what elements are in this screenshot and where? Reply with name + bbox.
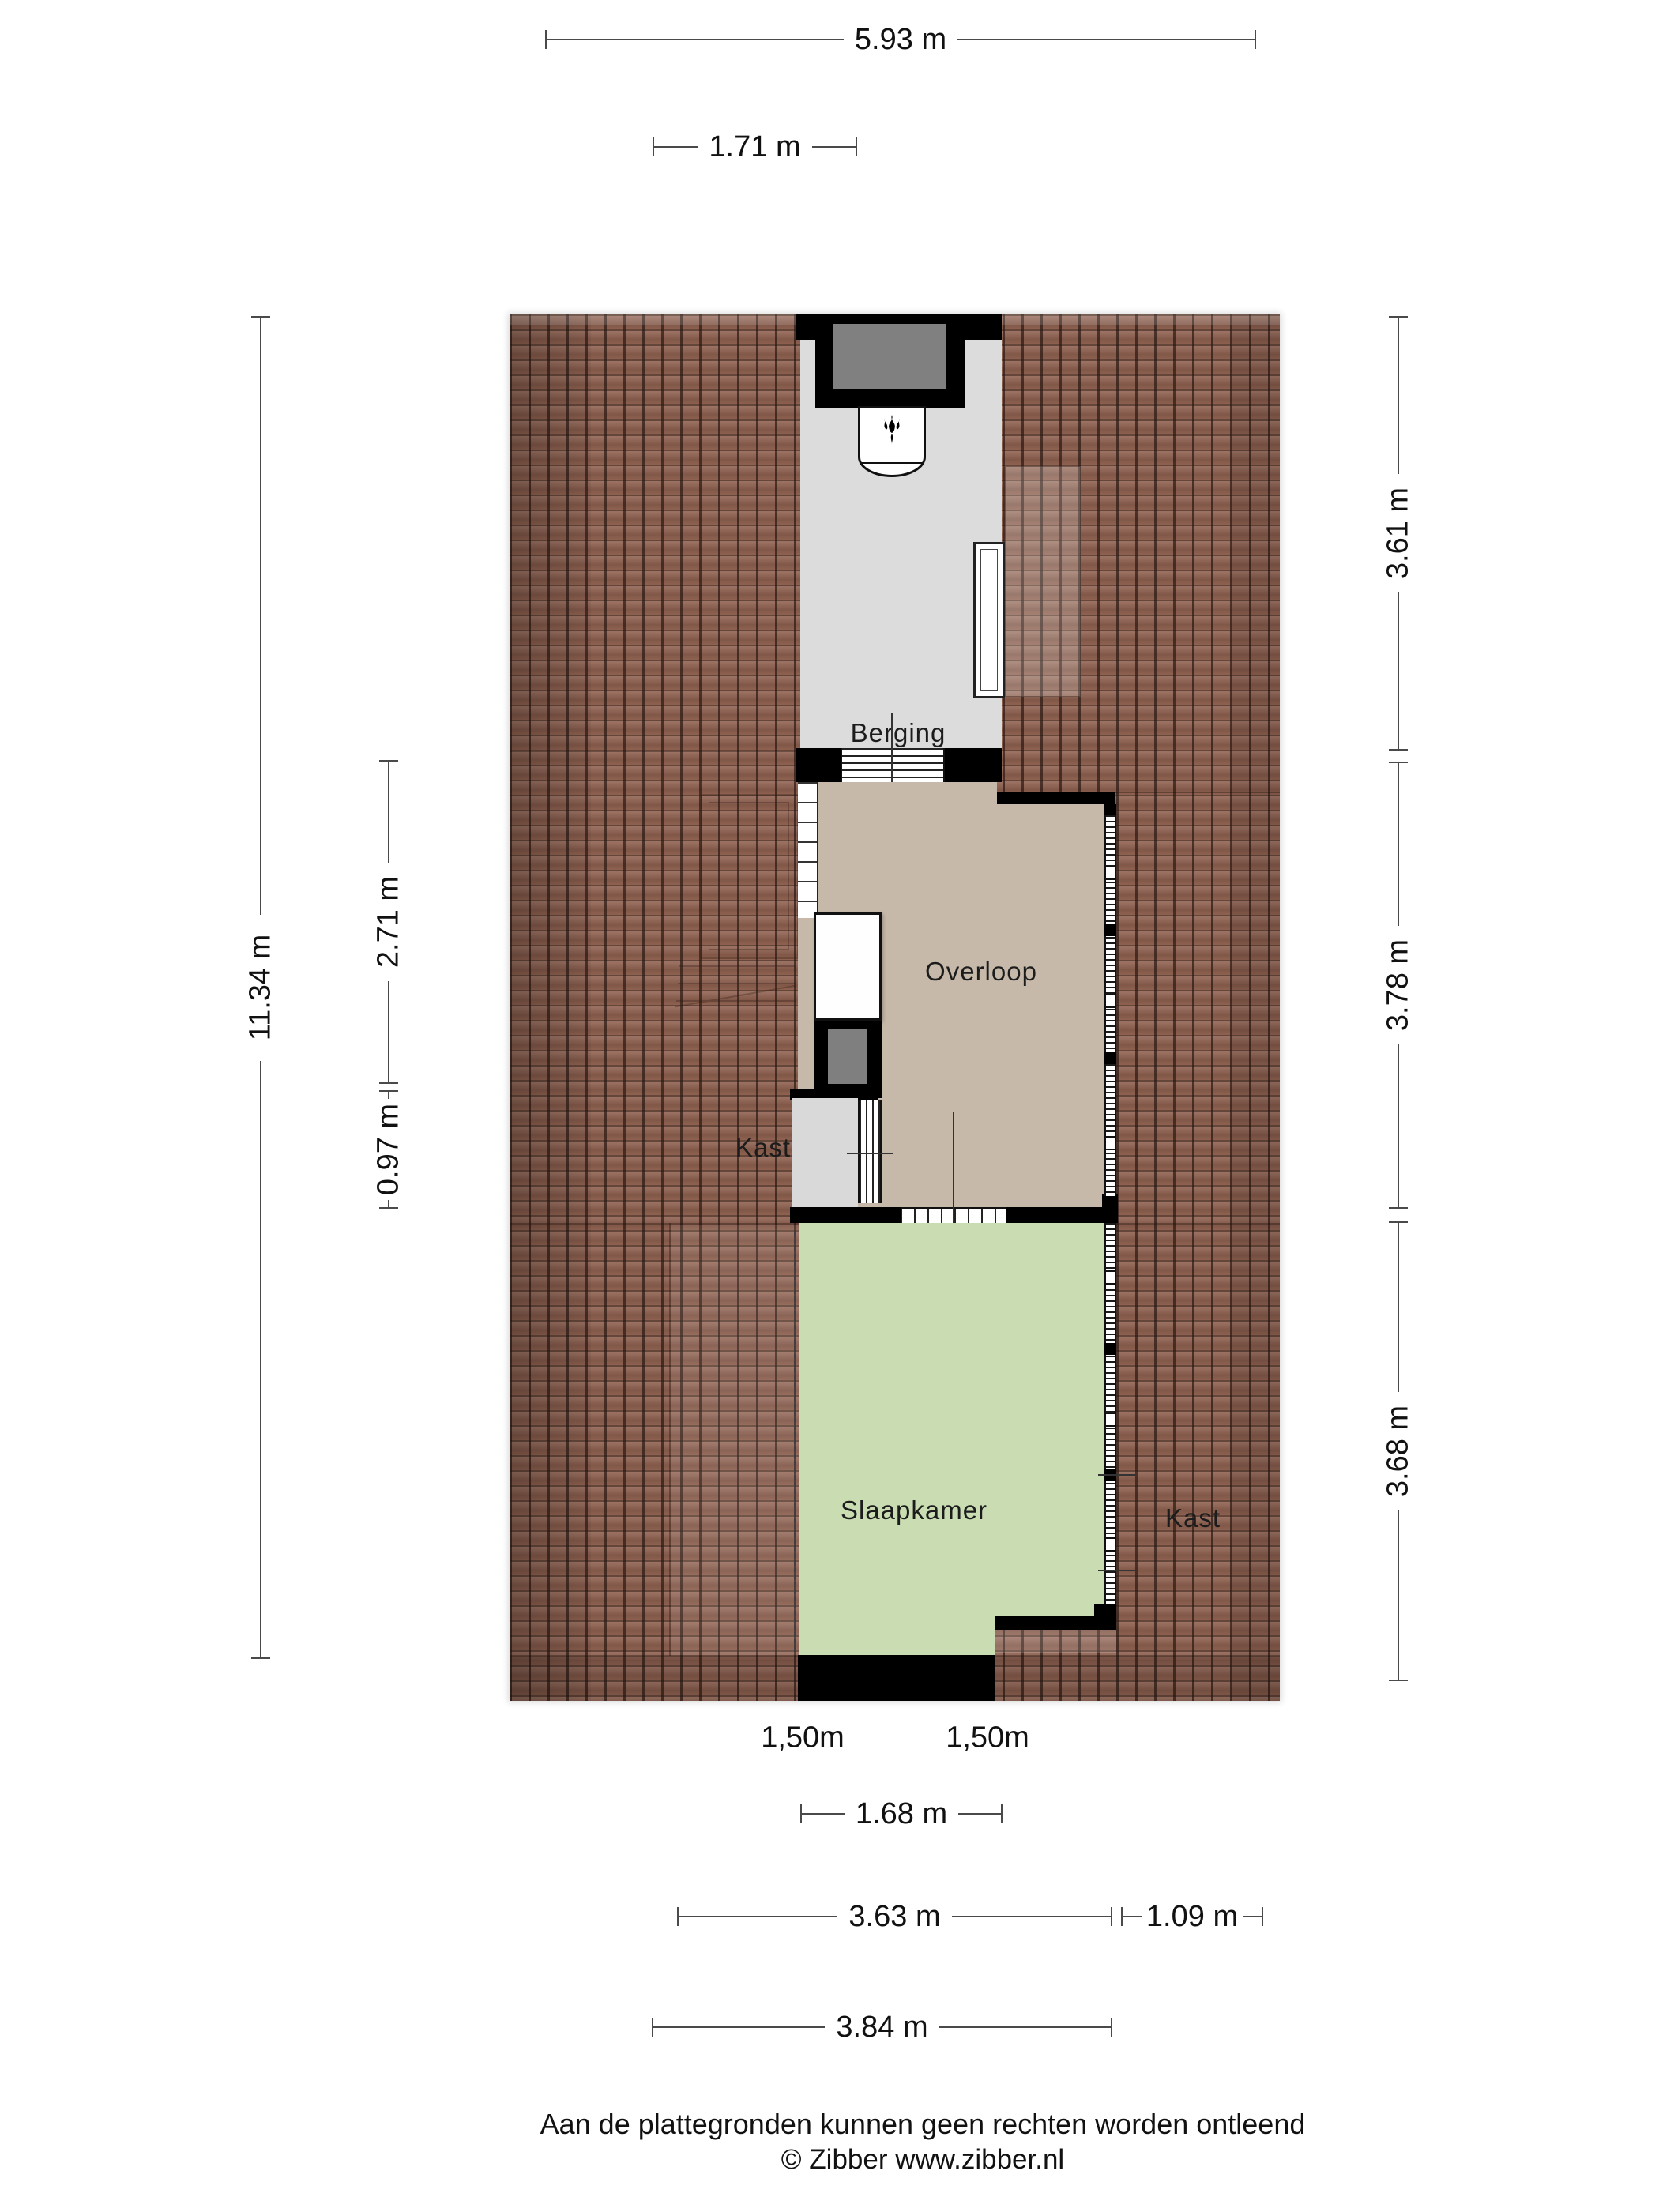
dim-overloop-height-right: 3.78 m <box>1379 762 1417 1209</box>
flame-icon <box>878 415 905 446</box>
dim-line <box>812 146 856 148</box>
dim-total-width-label: 5.93 m <box>844 23 957 57</box>
dim-tick <box>1389 1680 1408 1681</box>
dim-slaapkamer-height-label: 3.68 m <box>1379 1392 1417 1510</box>
berging-window <box>973 542 1005 698</box>
room-label-kast-left: Kast <box>735 1133 791 1163</box>
window-dimension-tick <box>1098 1570 1136 1571</box>
room-label-kast-right: Kast <box>1165 1503 1221 1533</box>
dim-line <box>653 2026 825 2028</box>
window-separator <box>1104 1343 1116 1355</box>
window-coupling <box>1106 866 1115 880</box>
window-dimension-tick <box>1098 1474 1136 1476</box>
window-coupling <box>1106 1136 1115 1150</box>
roof-seam <box>510 750 800 752</box>
stair-tread-line <box>676 1000 796 1002</box>
dim-slaapkamer-width-label: 3.63 m <box>837 1900 951 1934</box>
dim-door-width: 1.68 m <box>800 1796 1003 1831</box>
overloop-floor <box>997 804 1104 1207</box>
footer-copyright: © Zibber www.zibber.nl <box>310 2144 1535 2176</box>
dim-overloop-height: 2.71 m <box>370 760 408 1084</box>
staircase <box>798 782 818 918</box>
dim-kast-height: 0.97 m <box>370 1090 408 1209</box>
dim-overloop-height-label: 2.71 m <box>370 863 408 981</box>
dim-tick <box>1262 1907 1263 1926</box>
dim-line <box>260 1061 261 1658</box>
window-separator <box>1104 1196 1116 1207</box>
dim-line <box>1398 318 1399 474</box>
dim-tick <box>856 137 857 156</box>
window-separator <box>1104 924 1116 936</box>
dim-line <box>654 146 698 148</box>
berging-bottom-wall <box>942 748 1002 782</box>
dim-line <box>547 39 844 40</box>
dim-tick <box>1001 1804 1003 1823</box>
kast-door-jamb <box>858 1089 878 1100</box>
dim-kast-height-label: 0.97 m <box>370 1099 408 1200</box>
boiler <box>858 406 926 477</box>
dim-line <box>1123 1916 1142 1917</box>
dim-tick <box>251 1657 270 1659</box>
dim-total-height-label: 11.34 m <box>242 915 280 1061</box>
window-separator <box>1104 1052 1116 1064</box>
room-label-slaapkamer: Slaapkamer <box>841 1495 987 1525</box>
dim-line <box>679 1916 837 1917</box>
dim-berging-width: 1.71 m <box>653 130 857 164</box>
dim-tick <box>1255 30 1256 49</box>
kast-left-door <box>858 1100 882 1203</box>
overloop-top-right-wall <box>997 792 1115 804</box>
dim-line <box>952 1916 1111 1917</box>
overloop-window-wall <box>1104 804 1116 1207</box>
dim-slaapkamer-total-width: 3.84 m <box>652 2010 1112 2045</box>
slaapkamer-floor <box>799 1616 995 1655</box>
slaapkamer-window-wall <box>1104 1223 1116 1604</box>
roof-seam <box>1116 1223 1280 1224</box>
dim-line <box>1243 1916 1262 1917</box>
headroom-label-right: 1,50m <box>946 1721 1029 1755</box>
dim-kast-right-width-label: 1.09 m <box>1142 1900 1243 1934</box>
dim-slaapkamer-total-width-label: 3.84 m <box>825 2011 939 2045</box>
dim-berging-height-right: 3.61 m <box>1379 316 1417 750</box>
dim-total-height: 11.34 m <box>242 316 280 1659</box>
window-coupling <box>1106 1413 1115 1427</box>
dim-line <box>388 1092 389 1099</box>
dim-line <box>388 981 389 1082</box>
dim-slaapkamer-width: 3.63 m <box>677 1899 1112 1934</box>
room-label-berging: Berging <box>851 718 946 748</box>
dim-line <box>1398 1044 1399 1207</box>
floor-plan: Berging Kast Overloop Slaapkamer Kast <box>510 314 1280 1701</box>
dim-slaapkamer-height-right: 3.68 m <box>1379 1221 1417 1681</box>
dim-line <box>1398 1223 1399 1392</box>
dim-line <box>1398 592 1399 749</box>
footer-disclaimer: Aan de plattegronden kunnen geen rechten… <box>310 2108 1535 2141</box>
window-wall-end <box>1094 1604 1116 1630</box>
dim-line <box>802 1813 845 1815</box>
stair-tread-line <box>679 965 796 967</box>
roof-seam <box>669 1223 671 1656</box>
berging-door <box>841 748 945 782</box>
dim-line <box>1398 1510 1399 1680</box>
dim-line <box>939 2026 1111 2028</box>
dim-kast-right-width: 1.09 m <box>1121 1899 1263 1934</box>
headroom-contour-line <box>794 1232 796 1651</box>
dim-line <box>957 39 1255 40</box>
window-coupling <box>1106 1270 1115 1285</box>
chimney-shaft <box>833 324 946 389</box>
slaapkamer-floor <box>799 1223 1104 1616</box>
roof-seam <box>510 1223 799 1224</box>
berging-bottom-wall <box>796 748 841 782</box>
duct-shaft-inner <box>828 1029 867 1084</box>
stair-tread-line <box>678 983 796 984</box>
room-label-overloop: Overloop <box>925 957 1037 987</box>
dim-line <box>388 1200 389 1207</box>
window-coupling <box>1106 994 1115 1008</box>
overloop-bottom-wall <box>1006 1207 1104 1223</box>
dim-tick <box>1111 1907 1112 1926</box>
dim-tick <box>379 1207 398 1209</box>
dim-line <box>958 1813 1001 1815</box>
overloop-bottom-wall <box>790 1207 901 1223</box>
slaapkamer-bottom-wall <box>798 1655 995 1701</box>
dim-total-width: 5.93 m <box>545 22 1256 57</box>
dim-overloop-height-right-label: 3.78 m <box>1379 926 1417 1044</box>
headroom-label-left: 1,50m <box>761 1721 845 1755</box>
dim-line <box>260 318 261 915</box>
dim-tick <box>1389 1207 1408 1209</box>
dim-door-width-label: 1.68 m <box>845 1797 958 1831</box>
window-separator <box>1104 804 1116 815</box>
slaapkamer-door-center-line <box>953 1112 954 1234</box>
dim-line <box>388 762 389 863</box>
kast-dimension-tick <box>847 1153 893 1154</box>
stair-shaft <box>814 912 882 1021</box>
window-coupling <box>1106 1537 1115 1552</box>
dim-tick <box>1111 2018 1112 2037</box>
dim-tick <box>1389 749 1408 750</box>
dim-line <box>1398 763 1399 926</box>
dim-berging-height-label: 3.61 m <box>1379 474 1417 592</box>
dim-berging-width-label: 1.71 m <box>698 130 811 164</box>
dim-tick <box>379 1082 398 1084</box>
